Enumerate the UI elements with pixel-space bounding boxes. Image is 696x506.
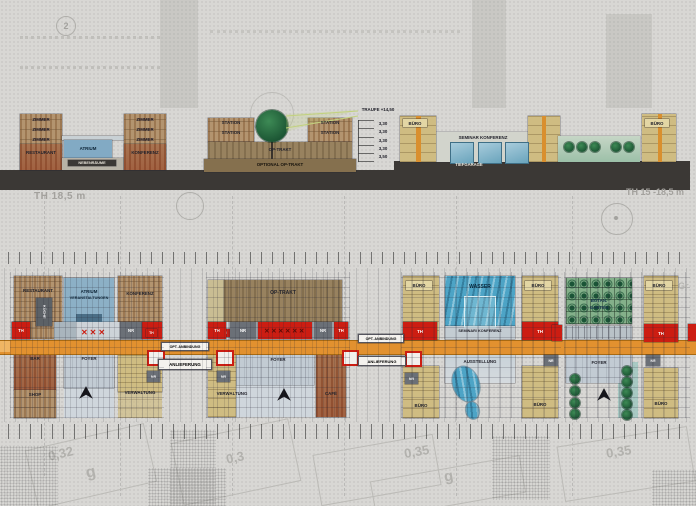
room-label: SEMINAR KONFERENZ [448,136,518,140]
plan-room [208,280,224,322]
floor-height: 3,30 [372,147,394,151]
bg-map-text: Gr [678,282,689,291]
room-label: ATRIUM [64,290,114,294]
dim-tick [358,161,374,162]
tree-icon [564,142,574,152]
tiefgarage-label: TIEFGARAGE [445,163,493,167]
room-label-box: BÜRO [406,281,432,290]
axis-label: ANLIEFERUNG [358,356,406,366]
bg-vegetation-patch [148,468,226,506]
ground-band-left [0,170,394,190]
room-label: FOYER [64,357,114,361]
pond [464,401,481,421]
room-label: STATION [308,131,352,135]
tree-icon [590,142,600,152]
room-label: FOYER [258,358,298,362]
room-label-box: BÜRO [525,281,551,290]
section-glass-box [478,142,502,164]
plan-room [236,385,314,417]
service-core: NR [120,322,142,339]
dim-tick [358,120,374,121]
room-label: OPTIONAL OP-TRAKT [204,163,356,167]
tree-icon [622,377,632,387]
plan-room [224,280,342,322]
bg-survey-circle [176,192,204,220]
height-label-right: TH 15 -18,5 m [626,188,684,197]
room-label: CAFÉ [316,392,346,396]
dim-tick [358,153,374,154]
dim-tick [358,137,374,138]
stair-core: TH [12,322,30,339]
room-label: SHOP [14,393,56,397]
service-core: NR [544,355,558,366]
room-label: ZIMMER [124,118,166,122]
room-label: RESTAURANT [18,151,64,155]
section-hotel-tower-left-base [20,144,62,170]
plan-room [118,276,162,322]
bg-vegetation-patch [0,446,58,506]
stair-core [688,324,696,341]
bg-building-block [160,0,198,108]
room-label: ZIMMER [124,138,166,142]
floor-height: 3,30 [372,130,394,134]
stair-core: TH [644,324,678,342]
ground-band-right [394,161,690,190]
stair-core: TH [208,322,226,339]
room-label: STATION [308,121,352,125]
axis-label: OPT. ANBINDUNG [358,334,404,343]
height-label-left: TH 18,5 m [34,192,86,202]
room-label: VERWALTUNG [204,392,260,396]
floor-height: 3,30 [372,139,394,143]
tree-icon [577,142,587,152]
room-label: FOYER [566,361,632,365]
section-hotel-tower-right-base [124,144,166,170]
tree-icon [622,399,632,409]
plan-room [118,392,162,418]
room-label: SEMINAR/ KONFERENZ [443,330,517,334]
north-arrow-icon [78,386,94,400]
room-label: ZIMMER [124,128,166,132]
north-arrow-icon [596,388,612,402]
room-label: BOTAN. [582,299,616,303]
tree-icon [570,409,580,419]
stair-core [552,325,562,341]
stair-core: TH [146,329,157,337]
service-core: NR [147,371,160,382]
service-core: NR [405,373,418,384]
room-label: KONFERENZ [122,151,168,155]
room-label: OP-TRAKT [224,291,342,296]
escalator-marks: ✕✕✕ [72,329,116,337]
link-bridge [216,350,234,366]
room-label: KONFERENZ [116,292,164,296]
room-label: ZIMMER [20,128,62,132]
north-arrow-icon [276,388,292,402]
room-label: OP-TRAKT [208,148,352,152]
room-label: BÜRO [405,404,437,408]
escalator-bank: ✕✕✕✕✕✕ [258,322,312,339]
room-label: GARTEN [582,306,616,310]
room-label-box: BÜRO [645,119,669,127]
bg-survey-number: 2 [56,16,76,36]
tree-icon [570,386,580,396]
floor-height: 3,30 [372,122,394,126]
section-glass-box [505,142,529,164]
section-hotel-nebenraeume: NEBENRÄUME [68,160,116,166]
service-core: NR [217,371,230,382]
bg-tree-row [20,36,160,39]
bg-tree-row [210,30,460,33]
room-label: ZIMMER [20,118,62,122]
section-office-shaft [542,116,546,162]
room-label-box: BÜRO [646,281,672,290]
circulation-axis-tip [0,341,10,352]
service-core: NR [230,322,256,339]
tree-icon [622,388,632,398]
room-label: STATION [208,131,254,135]
room-label: STATION [208,121,254,125]
stair-core: TH [403,322,437,340]
bg-building-block [606,14,652,108]
room-label: BAR [14,357,56,361]
tree-icon [570,374,580,384]
service-core: NR [646,355,660,366]
survey-tick-row [8,424,690,439]
bg-tree-row [20,66,160,69]
room-label: ATRIUM [64,147,112,151]
plan-corridor [566,326,632,339]
room-label: WASSER [445,285,515,290]
bg-survey-dot [614,216,618,220]
axis-label: OPT. ANBINDUNG [161,342,209,351]
room-label: AUSSTELLUNG [445,360,515,364]
dim-tick [358,145,374,146]
bg-building-block [472,0,506,108]
dim-tick [358,128,374,129]
room-label: BÜRO [646,402,676,406]
bg-vegetation-patch [492,436,550,500]
tree-icon [570,398,580,408]
stair-core: TH [334,322,348,339]
floor-height: 3,50 [372,155,394,159]
room-label: VERWALTUNG [112,391,168,395]
tree-icon [622,410,632,420]
plan-tower [644,368,678,418]
service-core: NR [314,322,332,339]
survey-tick-row [8,252,690,264]
plan-kueche: KÜCHE [36,298,52,326]
traufe-label: TRAUFE +14,50 [354,108,402,112]
plan-stage [76,314,102,322]
link-bridge [342,350,359,366]
room-label: BÜRO [524,403,556,407]
room-label: RESTAURANT [12,289,64,293]
room-label: VERANSTALTUNGEN [56,297,122,301]
plan-water-pavilion [464,296,496,328]
plan-tower [522,366,558,418]
room-label: ZIMMER [20,138,62,142]
tree-icon [611,142,621,152]
room-label-box: BÜRO [403,119,427,127]
tree-icon [624,142,634,152]
bg-vegetation-patch [652,470,696,506]
tree-icon [622,366,632,376]
axis-label: ANLIEFERUNG [158,359,212,370]
architectural-drawing: 2 TH 18,5 m TH 15 -18,5 m Gr 0,32 g 0,3 … [0,0,696,506]
section-glass-box [450,142,474,164]
link-bridge [405,351,422,367]
